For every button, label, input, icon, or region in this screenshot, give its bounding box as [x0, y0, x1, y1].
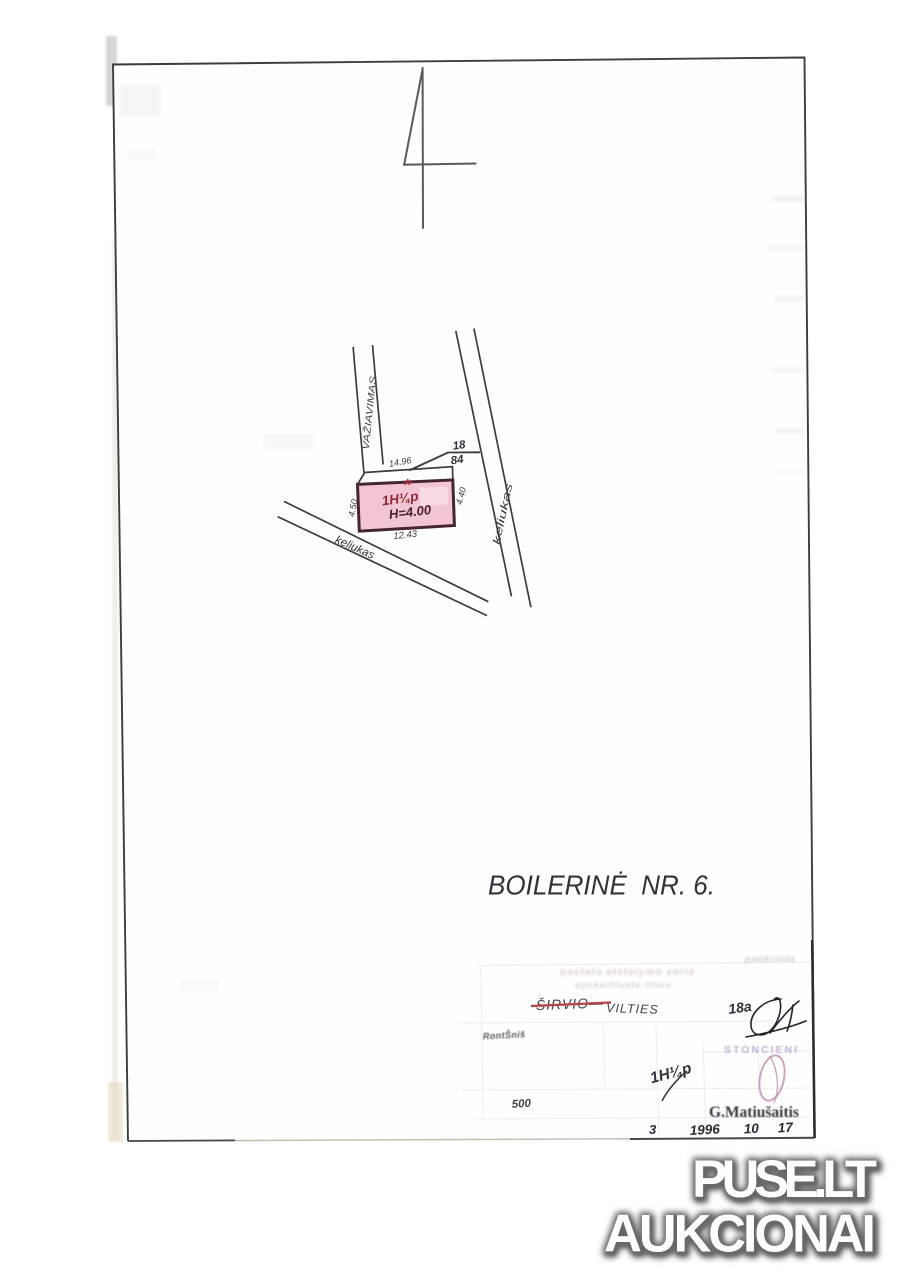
svg-text:apskaičiuota litais: apskaičiuota litais [575, 980, 672, 990]
svg-text:pastato atstatymo vertė: pastato atstatymo vertė [559, 967, 695, 978]
svg-text:G.Matiušaitis: G.Matiušaitis [709, 1104, 799, 1121]
svg-text:18a: 18a [727, 998, 753, 1017]
svg-text:10: 10 [743, 1121, 759, 1137]
svg-text:1996: 1996 [689, 1121, 720, 1138]
svg-text:RontŠniš: RontŠniš [483, 1028, 526, 1041]
svg-text:17: 17 [777, 1120, 794, 1136]
svg-text:STONCIENI: STONCIENI [724, 1044, 799, 1056]
svg-text:PUSE.LT: PUSE.LT [692, 1150, 877, 1209]
svg-text:500: 500 [511, 1098, 532, 1111]
svg-text:VILTIES: VILTIES [606, 1001, 659, 1017]
svg-text:84: 84 [450, 454, 465, 468]
svg-text:BOILERINĖ NR. 6.: BOILERINĖ NR. 6. [488, 870, 715, 901]
svg-text:18: 18 [452, 439, 467, 453]
svg-text:3: 3 [649, 1122, 657, 1137]
svg-text:patikrinta: patikrinta [744, 954, 796, 964]
svg-text:AUKCIONAI: AUKCIONAI [604, 1205, 876, 1264]
